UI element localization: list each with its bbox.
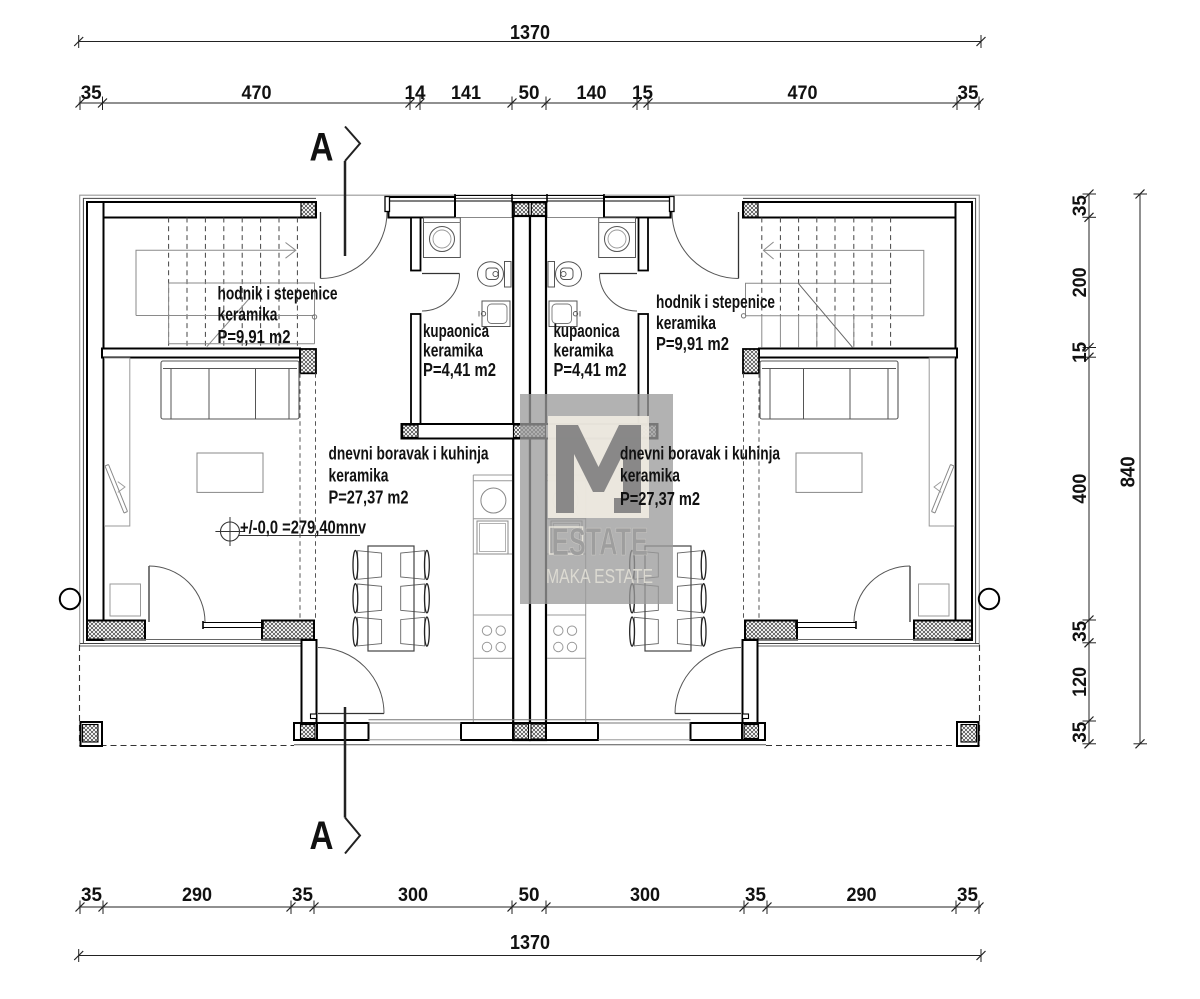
svg-text:P=27,37 m2: P=27,37 m2: [620, 489, 700, 509]
svg-text:dnevni boravak i kuhinja: dnevni boravak i kuhinja: [620, 444, 781, 464]
svg-text:keramika: keramika: [620, 466, 681, 486]
